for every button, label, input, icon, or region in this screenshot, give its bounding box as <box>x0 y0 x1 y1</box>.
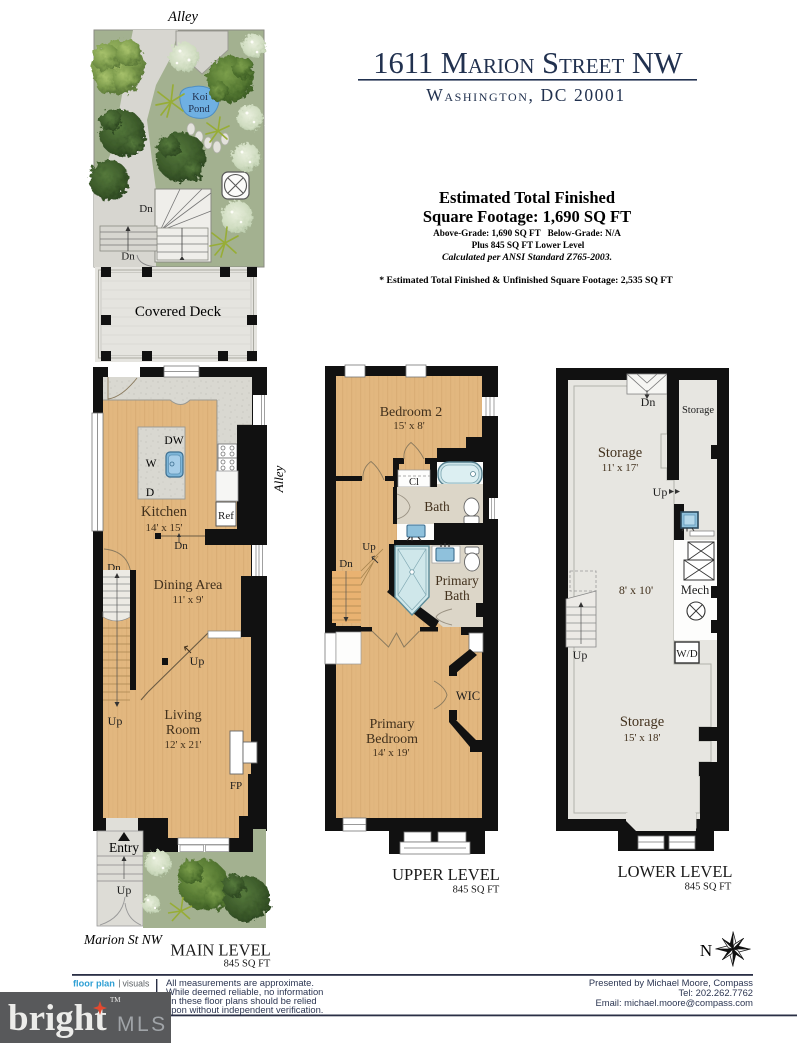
svg-text:Bath: Bath <box>444 588 470 603</box>
svg-text:Plus 845 SQ FT Lower Level: Plus 845 SQ FT Lower Level <box>472 240 585 250</box>
svg-text:Up: Up <box>117 883 132 897</box>
svg-text:DW: DW <box>164 435 183 447</box>
svg-text:Pond: Pond <box>188 104 210 115</box>
svg-text:Square Footage: 1,690 SQ FT: Square Footage: 1,690 SQ FT <box>423 207 631 226</box>
svg-text:Up: Up <box>573 648 588 662</box>
svg-text:Ref: Ref <box>218 510 234 522</box>
svg-text:Estimated Total Finished: Estimated Total Finished <box>439 188 615 207</box>
svg-text:Storage: Storage <box>620 714 664 730</box>
svg-text:845 SQ FT: 845 SQ FT <box>685 882 732 893</box>
svg-text:D: D <box>146 487 154 499</box>
svg-text:15' x 18': 15' x 18' <box>624 732 661 744</box>
svg-text:Dining Area: Dining Area <box>154 578 224 593</box>
svg-text:MAIN LEVEL: MAIN LEVEL <box>170 941 270 960</box>
svg-text:N: N <box>700 941 712 960</box>
svg-text:Storage: Storage <box>682 405 714 416</box>
svg-text:14' x 15': 14' x 15' <box>146 522 183 534</box>
svg-text:11' x 17': 11' x 17' <box>602 462 639 474</box>
svg-text:* Estimated Total Finished & U: * Estimated Total Finished & Unfinished … <box>379 275 673 286</box>
svg-text:Dn: Dn <box>641 395 656 409</box>
svg-text:Storage: Storage <box>598 445 642 461</box>
svg-text:Up: Up <box>108 714 123 728</box>
svg-text:Dn: Dn <box>139 203 153 215</box>
svg-text:14' x 19': 14' x 19' <box>373 747 410 759</box>
svg-text:8' x 10': 8' x 10' <box>619 583 653 597</box>
svg-text:Email: michael.moore@compass.c: Email: michael.moore@compass.com <box>596 997 754 1008</box>
svg-text:Calculated per ANSI Standard Z: Calculated per ANSI Standard Z765-2003. <box>442 252 612 263</box>
svg-text:Marion St NW: Marion St NW <box>83 932 164 947</box>
svg-text:WIC: WIC <box>456 689 480 703</box>
svg-text:visuals: visuals <box>123 979 150 989</box>
svg-text:Bedroom: Bedroom <box>366 732 418 747</box>
svg-text:UPPER LEVEL: UPPER LEVEL <box>392 865 500 884</box>
svg-text:FP: FP <box>230 780 242 792</box>
svg-text:Up: Up <box>362 541 376 553</box>
svg-text:W/D: W/D <box>676 648 697 660</box>
svg-text:845 SQ FT: 845 SQ FT <box>224 959 271 970</box>
svg-text:Up: Up <box>653 485 668 499</box>
svg-text:Bedroom 2: Bedroom 2 <box>380 405 443 420</box>
svg-text:Dn: Dn <box>174 540 188 552</box>
svg-text:Above-Grade: 1,690 SQ FT Bel: Above-Grade: 1,690 SQ FT Below-Grade: N/… <box>433 228 621 238</box>
svg-text:Entry: Entry <box>109 840 139 855</box>
svg-text:Dn: Dn <box>339 558 353 570</box>
svg-text:1611 Marion Street NW: 1611 Marion Street NW <box>373 46 683 80</box>
svg-text:15' x 8': 15' x 8' <box>393 420 424 432</box>
svg-text:MLS: MLS <box>117 1013 168 1036</box>
svg-text:Mech: Mech <box>681 583 710 597</box>
svg-text:Room: Room <box>166 723 200 738</box>
svg-text:12' x 21': 12' x 21' <box>165 739 202 751</box>
svg-text:LOWER LEVEL: LOWER LEVEL <box>617 862 732 881</box>
svg-text:Koi: Koi <box>192 92 208 103</box>
svg-text:Alley: Alley <box>167 9 198 25</box>
svg-text:W: W <box>146 458 157 470</box>
svg-text:845 SQ FT: 845 SQ FT <box>453 885 500 896</box>
svg-text:Alley: Alley <box>271 465 286 493</box>
svg-text:floor plan: floor plan <box>73 979 115 989</box>
svg-text:Primary: Primary <box>435 573 479 588</box>
svg-text:Covered Deck: Covered Deck <box>135 304 222 320</box>
svg-text:Bath: Bath <box>424 499 450 514</box>
svg-text:upon without independent verif: upon without independent verification. <box>166 1004 323 1015</box>
svg-text:TM: TM <box>110 996 121 1004</box>
svg-text:Cl: Cl <box>409 477 419 488</box>
svg-text:Dn: Dn <box>121 251 135 263</box>
svg-text:Up: Up <box>190 654 205 668</box>
svg-text:Kitchen: Kitchen <box>141 504 188 520</box>
svg-text:11' x 9': 11' x 9' <box>172 594 203 606</box>
svg-text:Living: Living <box>164 708 201 723</box>
svg-text:Washington, DC 20001: Washington, DC 20001 <box>426 85 625 105</box>
svg-text:Primary: Primary <box>369 717 414 732</box>
svg-text:bright: bright <box>8 998 107 1039</box>
